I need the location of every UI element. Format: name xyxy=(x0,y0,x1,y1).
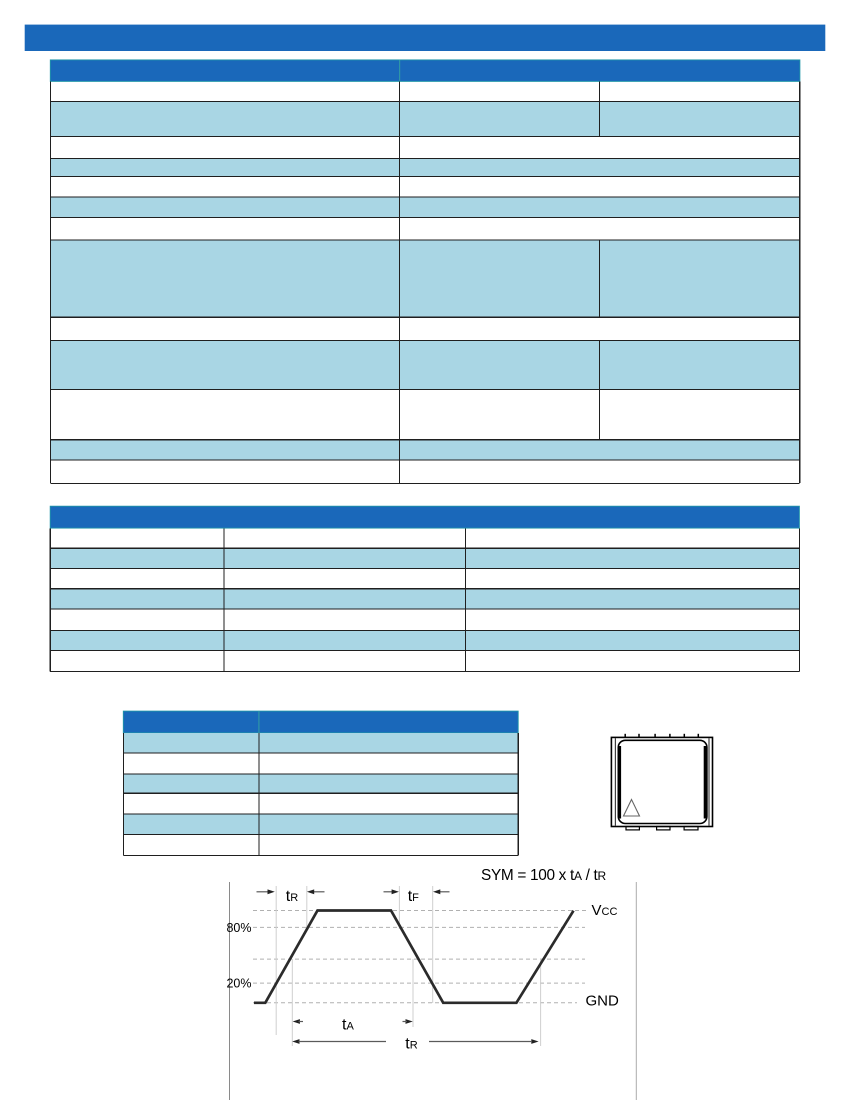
svg-text:20%: 20% xyxy=(226,977,251,991)
svg-text:SYM = 100 x tA / tR: SYM = 100 x tA / tR xyxy=(481,867,606,884)
svg-text:80%: 80% xyxy=(226,921,251,935)
svg-text:tF: tF xyxy=(408,888,419,905)
svg-text:GND: GND xyxy=(586,993,620,1010)
svg-text:tR: tR xyxy=(286,888,298,905)
svg-text:VCC: VCC xyxy=(592,902,618,919)
svg-text:tR: tR xyxy=(405,1036,417,1053)
svg-text:tA: tA xyxy=(342,1016,354,1033)
